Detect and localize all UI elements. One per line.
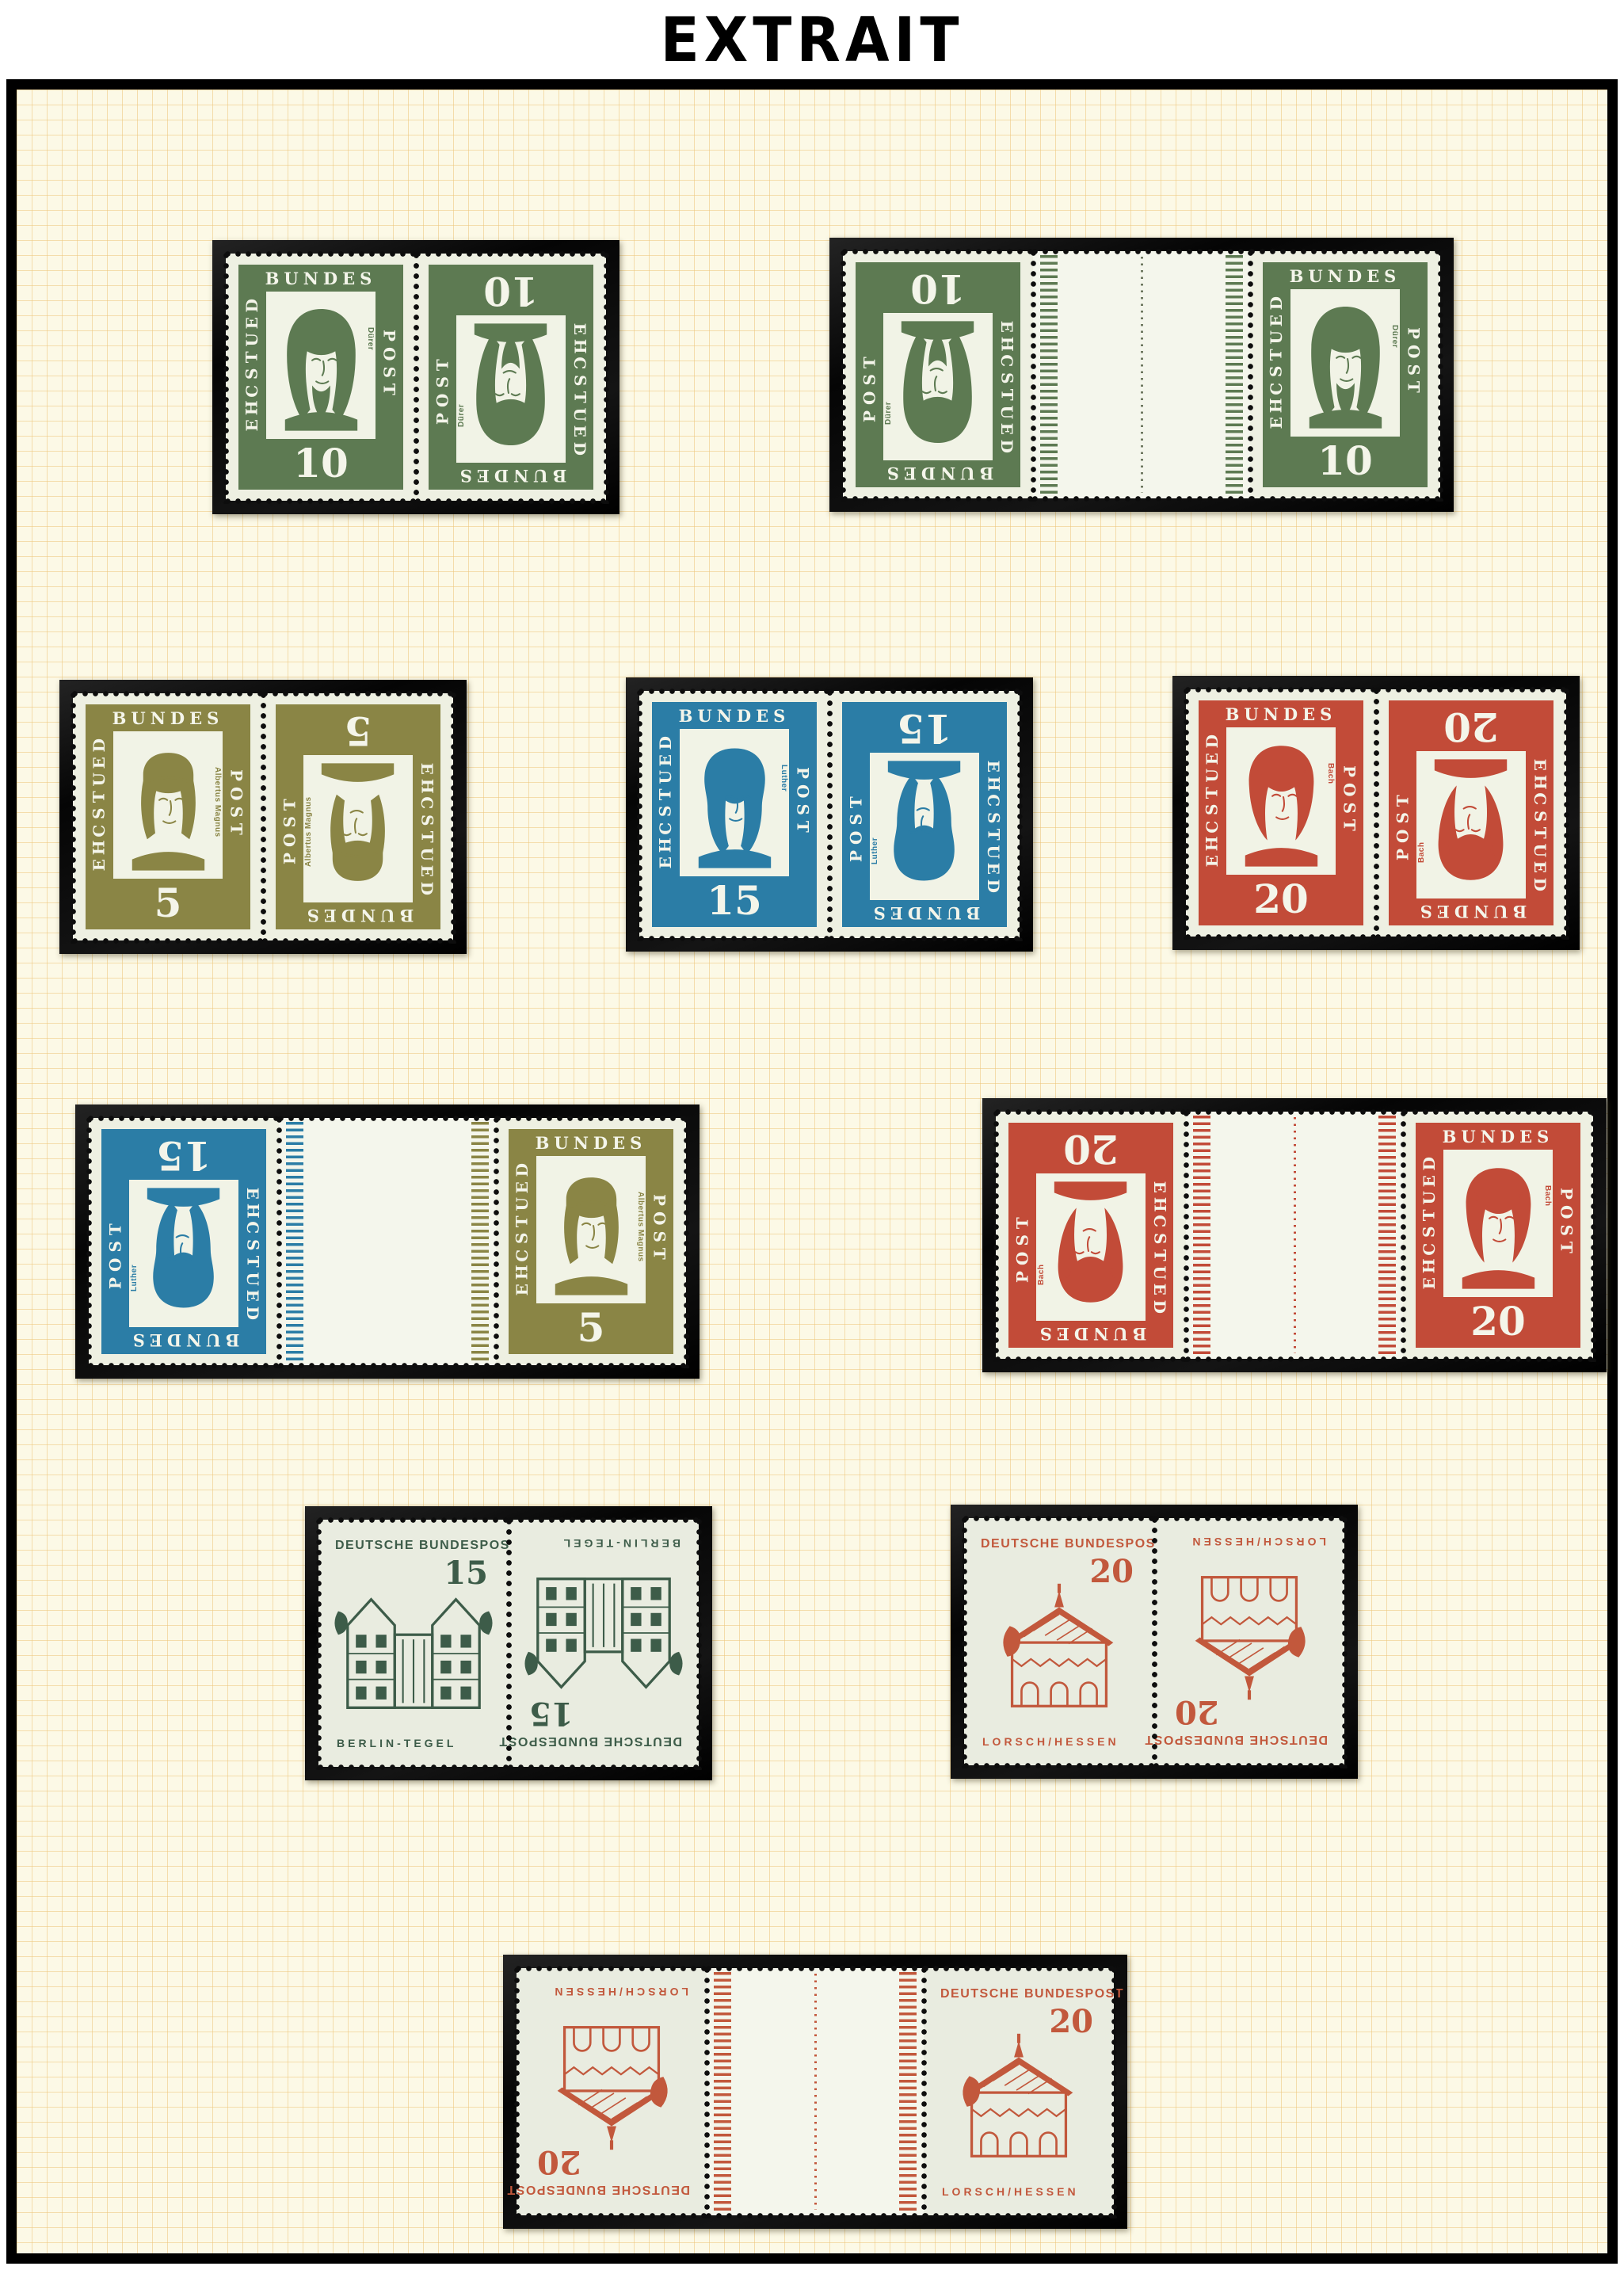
stamp-value: 5 (276, 704, 440, 755)
stamp-text-left: DEUTSCHE (979, 753, 1007, 900)
stamp-text-left-char: T (1204, 787, 1222, 799)
stamp-text-top: BUNDES (652, 702, 817, 729)
stamp-text-left-char: S (998, 372, 1016, 383)
portrait-name-label: Bach (1037, 1265, 1046, 1285)
perforation-t (276, 1115, 499, 1122)
stamp-text-left-char: H (418, 779, 436, 794)
portrait-name-label: Bach (1543, 1185, 1552, 1206)
stamp-face: BUNDESDEUTSCHEPOSTBach20 (1376, 689, 1566, 937)
stamp-text-top: BUNDES (238, 265, 403, 292)
gutter-selvage (1033, 251, 1250, 498)
stamp-header: DEUTSCHE BUNDESPOST (335, 1539, 519, 1553)
stamp-text-left-char: T (985, 829, 1002, 841)
stamp-value: 10 (238, 439, 403, 490)
stamp-text-left-char: T (1151, 1249, 1168, 1261)
portrait-name-label: Albertus Magnus (304, 797, 313, 868)
gutter-band-right (1378, 1116, 1396, 1355)
stamp-text-left-char: U (244, 1272, 261, 1286)
stamp-text-left-char: U (1531, 844, 1549, 857)
stamp-text-left-char: T (244, 1256, 261, 1268)
portrait-box: Albertus Magnus (113, 731, 223, 879)
stamp-text-left-char: S (985, 812, 1002, 823)
stamp-text-right: POST (847, 791, 866, 862)
lorsch-building-art (1167, 1559, 1332, 1708)
stamp-place-label: LORSCH/HESSEN (1189, 1536, 1326, 1548)
stamp-text-left-char: U (985, 845, 1002, 859)
stamp-text-left-char: T (1421, 1209, 1439, 1221)
stamp-text-left-char: C (1204, 820, 1222, 833)
stamp-text-left-char: D (1204, 734, 1222, 748)
stamp-value: 20 (1416, 1297, 1580, 1348)
stamp-text-left-char: H (1531, 775, 1549, 790)
stamp-text-left-char: H (1204, 836, 1222, 851)
stamp-face: BUNDESDEUTSCHEPOSTLuther15 (639, 691, 829, 938)
perforation-t (703, 1965, 927, 1972)
stamp-face: BUNDESDEUTSCHEPOSTBach20 (1186, 689, 1376, 937)
stamp-text-left: DEUTSCHE (1146, 1173, 1173, 1321)
stamp-text-left-char: S (1268, 366, 1286, 377)
portrait-box: Luther (680, 729, 789, 876)
stamp-design: DEUTSCHE BUNDESPOST20 LORSCH/HESSEN (1164, 1528, 1335, 1756)
stamp-text-left-char: H (1151, 1197, 1168, 1212)
stamp-design: BUNDESDEUTSCHEPOSTDürer10 (856, 262, 1020, 487)
stamp-mount-m7-gutter: BUNDESDEUTSCHEPOSTBach20BUNDESDEUTSCHEPO… (982, 1098, 1607, 1372)
stamp-text-left-char: U (244, 333, 261, 346)
stamp-durer10: BUNDESDEUTSCHEPOSTDürer10 (226, 254, 416, 501)
stamp-text-left-char: E (91, 859, 109, 871)
stamp-text-left-char: T (998, 389, 1016, 401)
gutter-band-right (1226, 255, 1243, 494)
stamp-place-label: LORSCH/HESSEN (551, 1986, 688, 1998)
stamp-text-left-char: C (91, 824, 109, 837)
stamp-design: BUNDESDEUTSCHEPOSTBach20 (1008, 1123, 1173, 1348)
portrait-name-label: Luther (130, 1265, 139, 1291)
gutter-band-left (1193, 1116, 1210, 1355)
durer-portrait-art (888, 313, 989, 455)
stamp-albertus5: BUNDESDEUTSCHEPOSTAlbertus Magnus5 (496, 1118, 686, 1365)
lorsch-building-art (977, 1575, 1142, 1724)
stamp-text-left-char: E (91, 757, 109, 769)
stamp-face: DEUTSCHE BUNDESPOST20 LORSCH/HESSEN (517, 1968, 707, 2215)
stamp-text-left-char: D (1531, 878, 1549, 891)
stamp-face: BUNDESDEUTSCHEPOSTDürer10 (226, 254, 416, 501)
stamp-mount-m6-gutter: BUNDESDEUTSCHEPOSTLuther15BUNDESDEUTSCHE… (75, 1104, 700, 1379)
stamp-text-left-char: S (571, 375, 589, 386)
stamp-design: DEUTSCHE BUNDESPOST20 LORSCH/HESSEN (974, 1528, 1145, 1756)
stamp-durer10-inverted: BUNDESDEUTSCHEPOSTDürer10 (843, 251, 1033, 498)
stamp-face: BUNDESDEUTSCHEPOSTAlbertus Magnus5 (263, 693, 453, 940)
perforation-b (703, 2212, 927, 2219)
portrait-name-label: Albertus Magnus (636, 1192, 645, 1262)
portrait-name-label: Dürer (1390, 325, 1399, 348)
stamp-mount-m10-gutter: DEUTSCHE BUNDESPOST20 LORSCH/HESSENDEUTS… (503, 1955, 1127, 2229)
stamp-text-left: DEUTSCHE (1416, 1150, 1443, 1297)
stamp-text-right: POST (433, 353, 452, 425)
stamp-text-left-char: H (244, 1204, 261, 1219)
stamp-text-left-char: D (244, 1307, 261, 1320)
stamp-text-left: DEUTSCHE (238, 292, 266, 439)
stamp-value: 10 (1263, 437, 1428, 487)
stamp-text-left-char: U (418, 848, 436, 861)
stamp-text-left-char: E (1151, 1284, 1168, 1295)
stamp-design: BUNDESDEUTSCHEPOSTLuther15 (652, 702, 817, 927)
perforation-t (1183, 1108, 1406, 1116)
stamp-lorsch20: DEUTSCHE BUNDESPOST20 LORSCH/HESSEN (924, 1968, 1114, 2215)
stamp-text-left-char: E (1268, 417, 1286, 429)
stamp-text-left-char: E (1204, 753, 1222, 765)
stamp-text-top: BUNDES (276, 902, 440, 929)
stamp-header: DEUTSCHE BUNDESPOST (940, 1987, 1124, 2001)
stamp-text-top: BUNDES (1263, 262, 1428, 289)
stamp-durer10-inverted: BUNDESDEUTSCHEPOSTDürer10 (416, 254, 606, 501)
stamp-text-left: DEUTSCHE (1263, 289, 1290, 437)
stamp-text-top: BUNDES (856, 460, 1020, 487)
stamp-design: BUNDESDEUTSCHEPOSTLuther15 (842, 702, 1007, 927)
stamp-text-left-char: S (658, 806, 675, 817)
lorsch-building-art (936, 2025, 1101, 2174)
stamp-text-left-char: H (571, 339, 589, 354)
albertus-portrait-art (118, 737, 219, 879)
stamp-text-left-char: E (1531, 861, 1549, 873)
stamp-text-left-char: H (91, 840, 109, 855)
stamp-text-left-char: E (244, 317, 261, 329)
stamp-text-left: DEUTSCHE (1199, 727, 1226, 875)
portrait-name-label: Luther (871, 837, 879, 864)
stamp-face: DEUTSCHE BUNDESPOST20 LORSCH/HESSEN (964, 1518, 1154, 1765)
stamp-text-left-char: C (1531, 793, 1549, 806)
perforation-b (276, 1362, 499, 1369)
stamp-design: DEUTSCHE BUNDESPOST15 BERLIN-TEGEL (518, 1529, 689, 1757)
stamp-text-left-char: H (1421, 1258, 1439, 1273)
luther-portrait-art (134, 1180, 234, 1322)
stamp-design: BUNDESDEUTSCHEPOSTBach20 (1199, 700, 1363, 925)
building-art-box (977, 1575, 1142, 1724)
gutter-band-left (286, 1122, 303, 1361)
stamp-text-left-char: E (514, 1181, 532, 1193)
stamp-place-label: LORSCH/HESSEN (942, 2185, 1079, 2198)
stamp-text-left-char: U (1151, 1266, 1168, 1280)
stamp-text-left-char: T (244, 351, 261, 363)
stamp-text-left-char: U (571, 408, 589, 422)
stamp-text-left-char: S (1151, 1233, 1168, 1244)
stamp-text-left: DEUTSCHE (86, 731, 113, 879)
stamp-text-left-char: D (571, 442, 589, 456)
stamp-mount-m8-tete-beche: DEUTSCHE BUNDESPOST15 BERLIN-TEGELDEUTSC… (305, 1506, 712, 1780)
portrait-box: Dürer (266, 292, 376, 439)
stamp-design: BUNDESDEUTSCHEPOSTBach20 (1416, 1123, 1580, 1348)
stamp-face: BUNDESDEUTSCHEPOSTLuther15 (89, 1118, 279, 1365)
bach-portrait-art (1231, 733, 1332, 875)
stamp-text-top: BUNDES (429, 463, 593, 490)
portrait-box: Dürer (1290, 289, 1400, 437)
stamp-design: BUNDESDEUTSCHEPOSTBach20 (1389, 700, 1553, 925)
gutter-center-dotted-line (1294, 1117, 1296, 1353)
stamp-text-left-char: E (1151, 1181, 1168, 1193)
portrait-box: Bach (1416, 751, 1526, 898)
stamp-text-left-char: C (998, 355, 1016, 368)
portrait-name-label: Dürer (366, 327, 375, 350)
stamp-text-right: POST (794, 767, 813, 838)
stamp-text-left-char: D (514, 1163, 532, 1177)
stamp-text-left-char: C (514, 1249, 532, 1261)
stamp-text-top: BUNDES (1416, 1123, 1580, 1150)
stamp-design: BUNDESDEUTSCHEPOSTDürer10 (238, 265, 403, 490)
stamp-text-left-char: C (244, 384, 261, 397)
stamp-face: DEUTSCHE BUNDESPOST15 BERLIN-TEGEL (509, 1520, 699, 1767)
bach-portrait-art (1041, 1173, 1142, 1315)
stamp-text-left-char: E (658, 754, 675, 766)
portrait-box: Dürer (883, 313, 993, 460)
stamp-text-left-char: D (244, 299, 261, 312)
stamp-text-left-char: T (1531, 827, 1549, 839)
stamp-text-left-char: D (1151, 1300, 1168, 1314)
stamp-lorsch20-inverted: DEUTSCHE BUNDESPOST20 LORSCH/HESSEN (1154, 1518, 1344, 1765)
portrait-box: Luther (870, 753, 979, 900)
stamp-design: BUNDESDEUTSCHEPOSTAlbertus Magnus5 (86, 704, 250, 929)
stamp-text-left: DEUTSCHE (509, 1156, 536, 1303)
portrait-name-label: Bach (1326, 763, 1335, 784)
stamp-face: DEUTSCHE BUNDESPOST15 BERLIN-TEGEL (318, 1520, 509, 1767)
tegel-building-art (521, 1561, 686, 1710)
stamp-face: BUNDESDEUTSCHEPOSTLuther15 (829, 691, 1020, 938)
portrait-box: Bach (1226, 727, 1336, 875)
stamp-face: BUNDESDEUTSCHEPOSTBach20 (1403, 1112, 1593, 1359)
stamp-text-left-char: C (1268, 382, 1286, 395)
stamp-text-left-char: T (418, 831, 436, 843)
stamp-face: DEUTSCHE BUNDESPOST20 LORSCH/HESSEN (924, 1968, 1114, 2215)
stamp-text-right: POST (1557, 1188, 1576, 1259)
stamp-text-left-char: S (244, 1239, 261, 1250)
stamp-text-left-char: E (1204, 855, 1222, 867)
stamp-face: DEUTSCHE BUNDESPOST20 LORSCH/HESSEN (1154, 1518, 1344, 1765)
stamp-text-left-char: D (418, 882, 436, 895)
stamp-text-left-char: E (1421, 1277, 1439, 1289)
stamp-text-left-char: E (571, 425, 589, 437)
stamp-text-left-char: S (418, 815, 436, 826)
stamp-header: DEUTSCHE BUNDESPOST (506, 2182, 690, 2196)
stamp-text-left-char: S (514, 1233, 532, 1244)
gutter-selvage (279, 1118, 496, 1365)
stamp-design: BUNDESDEUTSCHEPOSTAlbertus Magnus5 (509, 1129, 673, 1354)
stamp-text-left-char: U (91, 773, 109, 786)
stamp-face: BUNDESDEUTSCHEPOSTAlbertus Magnus5 (496, 1118, 686, 1365)
stamp-design: BUNDESDEUTSCHEPOSTDürer10 (429, 265, 593, 490)
stamp-text-left-char: C (985, 795, 1002, 807)
stamp-text-right: POST (1340, 765, 1359, 837)
perforation-t (1030, 248, 1253, 255)
stamp-text-left-char: S (91, 808, 109, 819)
stamp-place-label: LORSCH/HESSEN (982, 1735, 1119, 1748)
perforation-b (1183, 1356, 1406, 1363)
stamp-luther15-inverted: BUNDESDEUTSCHEPOSTLuther15 (89, 1118, 279, 1365)
stamp-value: 20 (1199, 875, 1363, 925)
stamp-value: 15 (101, 1129, 266, 1180)
stamp-text-left-char: H (658, 837, 675, 853)
stamp-text-left-char: U (514, 1197, 532, 1211)
stamp-bach20-inverted: BUNDESDEUTSCHEPOSTBach20 (996, 1112, 1186, 1359)
stamp-text-top: BUNDES (1199, 700, 1363, 727)
stamp-value: 5 (86, 879, 250, 929)
stamp-durer10: BUNDESDEUTSCHEPOSTDürer10 (1250, 251, 1440, 498)
stamp-text-left-char: H (514, 1265, 532, 1280)
stamp-text-top: BUNDES (842, 900, 1007, 927)
portrait-box: Dürer (456, 315, 566, 463)
stamp-face: BUNDESDEUTSCHEPOSTDürer10 (843, 251, 1033, 498)
stamp-place-label: BERLIN-TEGEL (337, 1737, 456, 1749)
gutter-band-left (1040, 255, 1058, 494)
stamp-value: 15 (652, 876, 817, 927)
stamp-face: BUNDESDEUTSCHEPOSTDürer10 (1250, 251, 1440, 498)
portrait-box: Bach (1036, 1173, 1146, 1321)
stamp-text-right: POST (860, 351, 879, 422)
stamp-text-left-char: E (985, 761, 1002, 773)
stamp-value: 5 (509, 1303, 673, 1354)
stamp-place-label: BERLIN-TEGEL (561, 1537, 680, 1550)
stamp-text-left-char: H (985, 776, 1002, 792)
stamp-albertus5-inverted: BUNDESDEUTSCHEPOSTAlbertus Magnus5 (263, 693, 453, 940)
stamp-lorsch20: DEUTSCHE BUNDESPOST20 LORSCH/HESSEN (964, 1518, 1154, 1765)
album-frame: BUNDESDEUTSCHEPOSTDürer10BUNDESDEUTSCHEP… (6, 79, 1618, 2264)
stamp-text-top: BUNDES (1389, 898, 1553, 925)
stamp-text-left-char: E (998, 321, 1016, 333)
lorsch-building-art (529, 2009, 694, 2158)
tegel-building-art (331, 1577, 496, 1726)
stamp-mount-m3-tete-beche: BUNDESDEUTSCHEPOSTAlbertus Magnus5BUNDES… (59, 680, 467, 954)
stamp-tegel15-inverted: DEUTSCHE BUNDESPOST15 BERLIN-TEGEL (509, 1520, 699, 1767)
portrait-name-label: Dürer (457, 404, 466, 427)
stamp-mount-m1-tete-beche: BUNDESDEUTSCHEPOSTDürer10BUNDESDEUTSCHEP… (212, 240, 619, 514)
stamp-text-left-char: U (1421, 1191, 1439, 1204)
stamp-text-left-char: U (1204, 769, 1222, 782)
stamp-text-top: BUNDES (101, 1327, 266, 1354)
stamp-text-left-char: D (1421, 1157, 1439, 1170)
bach-portrait-art (1421, 751, 1522, 893)
stamp-text-left-char: C (1151, 1215, 1168, 1228)
stamp-text-left-char: E (244, 1290, 261, 1302)
stamp-design: BUNDESDEUTSCHEPOSTAlbertus Magnus5 (276, 704, 440, 929)
portrait-box: Albertus Magnus (536, 1156, 646, 1303)
gutter-band-right (899, 1972, 917, 2211)
perforation-b (1030, 495, 1253, 502)
stamp-text-right: POST (1405, 327, 1424, 399)
stamp-text-left-char: C (571, 357, 589, 370)
luther-portrait-art (684, 734, 785, 876)
durer-portrait-art (271, 297, 372, 439)
stamp-mount-m9-tete-beche: DEUTSCHE BUNDESPOST20 LORSCH/HESSENDEUTS… (951, 1505, 1358, 1779)
gutter-band-right (471, 1122, 489, 1361)
stamp-text-left-char: U (998, 406, 1016, 419)
building-art-box (936, 2025, 1101, 2174)
stamp-text-left-char: E (1268, 315, 1286, 326)
stamp-text-left-char: S (1204, 804, 1222, 815)
stamp-text-left-char: E (244, 1188, 261, 1200)
stamp-value: 10 (856, 262, 1020, 313)
stamp-text-left-char: T (91, 791, 109, 803)
stamp-mount-m2-gutter: BUNDESDEUTSCHEPOSTDürer10BUNDESDEUTSCHEP… (829, 238, 1454, 512)
stamp-header: DEUTSCHE BUNDESPOST (1144, 1732, 1328, 1746)
stamp-text-right: POST (1393, 789, 1412, 860)
stamp-text-left-char: D (658, 736, 675, 750)
stamp-text-left-char: U (1268, 330, 1286, 344)
stamp-value: 15 (842, 702, 1007, 753)
stamp-text-left-char: D (985, 879, 1002, 893)
building-art-box (529, 2009, 694, 2158)
luther-portrait-art (875, 753, 975, 895)
stamp-text-left-char: T (658, 788, 675, 800)
stamp-header: DEUTSCHE BUNDESPOST (981, 1537, 1165, 1551)
gutter-band-left (714, 1972, 731, 2211)
gutter-center-dotted-line (814, 1974, 817, 2210)
albertus-portrait-art (541, 1162, 642, 1303)
portrait-box: Luther (129, 1180, 238, 1327)
stamp-text-right: POST (650, 1194, 669, 1265)
durer-portrait-art (461, 315, 562, 457)
stamp-text-left-char: E (985, 863, 1002, 875)
stamp-text-left-char: C (244, 1222, 261, 1234)
stamp-text-left-char: E (998, 423, 1016, 435)
portrait-name-label: Dürer (884, 402, 893, 425)
stamp-text-left-char: C (658, 822, 675, 834)
stamp-text-left-char: D (91, 738, 109, 752)
stamp-text-left-char: S (1531, 811, 1549, 822)
stamp-face: BUNDESDEUTSCHEPOSTAlbertus Magnus5 (73, 693, 263, 940)
building-art-box (521, 1561, 686, 1710)
stamp-text-right: POST (380, 330, 399, 401)
stamp-text-left-char: E (1421, 1175, 1439, 1187)
stamp-face: BUNDESDEUTSCHEPOSTBach20 (996, 1112, 1186, 1359)
stamp-lorsch20-inverted: DEUTSCHE BUNDESPOST20 LORSCH/HESSEN (517, 1968, 707, 2215)
stamp-text-left: DEUTSCHE (413, 755, 440, 902)
stamp-albertus5: BUNDESDEUTSCHEPOSTAlbertus Magnus5 (73, 693, 263, 940)
building-art-box (331, 1577, 496, 1726)
stamp-text-left-char: E (244, 419, 261, 431)
stamp-text-right: POST (106, 1218, 125, 1289)
stamp-text-left-char: C (1421, 1242, 1439, 1255)
stamp-header: DEUTSCHE BUNDESPOST (498, 1734, 682, 1748)
stamp-text-left-char: H (998, 337, 1016, 352)
stamp-text-left-char: E (418, 763, 436, 775)
stamp-text-left-char: D (998, 440, 1016, 453)
stamp-text-left-char: H (244, 400, 261, 415)
stamp-text-right: POST (1013, 1211, 1032, 1283)
stamp-text-right: POST (280, 793, 299, 864)
stamp-bach20: BUNDESDEUTSCHEPOSTBach20 (1403, 1112, 1593, 1359)
stamp-text-left-char: T (571, 391, 589, 403)
stamp-text-left-char: D (1268, 296, 1286, 310)
gutter-center-dotted-line (1141, 257, 1143, 493)
stamp-design: DEUTSCHE BUNDESPOST20 LORSCH/HESSEN (526, 1978, 697, 2206)
stamp-text-left: DEUTSCHE (652, 729, 680, 876)
stamp-text-left-char: H (1268, 398, 1286, 413)
stamp-text-top: BUNDES (86, 704, 250, 731)
stamp-design: BUNDESDEUTSCHEPOSTDürer10 (1263, 262, 1428, 487)
stamp-text-left: DEUTSCHE (1526, 751, 1553, 898)
stamp-text-left: DEUTSCHE (566, 315, 593, 463)
stamp-text-left-char: S (244, 368, 261, 380)
stamp-text-left-char: E (418, 865, 436, 877)
stamp-text-top: BUNDES (509, 1129, 673, 1156)
stamp-value: 20 (1008, 1123, 1173, 1173)
building-art-box (1167, 1559, 1332, 1708)
stamp-mount-m4-tete-beche: BUNDESDEUTSCHEPOSTLuther15BUNDESDEUTSCHE… (626, 677, 1033, 952)
stamp-bach20: BUNDESDEUTSCHEPOSTBach20 (1186, 689, 1376, 937)
portrait-name-label: Bach (1417, 842, 1426, 863)
stamp-text-left-char: U (658, 770, 675, 784)
portrait-box: Bach (1443, 1150, 1553, 1297)
durer-portrait-art (1295, 295, 1396, 437)
portrait-name-label: Albertus Magnus (213, 767, 222, 837)
portrait-name-label: Luther (780, 765, 788, 792)
